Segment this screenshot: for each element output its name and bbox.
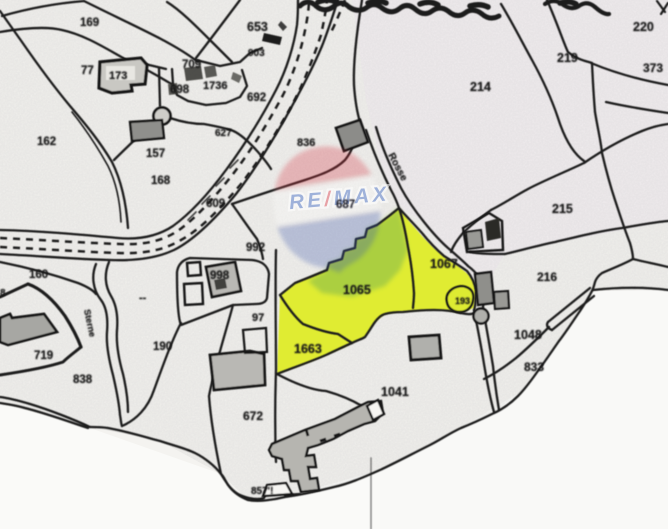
svg-text:173: 173 <box>109 70 127 82</box>
svg-text:903: 903 <box>248 48 265 59</box>
svg-text:833: 833 <box>524 360 544 374</box>
svg-text:1067: 1067 <box>430 257 458 271</box>
svg-text:672: 672 <box>243 409 263 423</box>
svg-text:214: 214 <box>470 80 491 94</box>
svg-text:627: 627 <box>215 128 232 139</box>
svg-text:168: 168 <box>151 175 171 187</box>
svg-text:992: 992 <box>246 242 265 254</box>
svg-text:1048: 1048 <box>514 328 542 342</box>
svg-text:162: 162 <box>37 136 56 148</box>
svg-text:216: 216 <box>537 270 557 284</box>
svg-text:97: 97 <box>252 312 264 324</box>
svg-text:998: 998 <box>210 270 230 282</box>
svg-text:8: 8 <box>0 288 6 299</box>
svg-text:1065: 1065 <box>343 283 371 297</box>
svg-text:709: 709 <box>182 59 201 71</box>
svg-text:719: 719 <box>34 350 53 362</box>
svg-text:190: 190 <box>153 341 172 353</box>
svg-text:77: 77 <box>81 65 94 77</box>
svg-text:169: 169 <box>80 17 99 29</box>
svg-text:836: 836 <box>297 137 315 149</box>
svg-text:219: 219 <box>557 51 578 65</box>
svg-text:653: 653 <box>247 20 268 34</box>
svg-text:838: 838 <box>73 374 93 386</box>
svg-text:609: 609 <box>206 198 225 210</box>
svg-text:692: 692 <box>247 92 266 104</box>
svg-text:1736: 1736 <box>203 80 227 92</box>
svg-text:215: 215 <box>552 202 573 216</box>
svg-text:160: 160 <box>29 269 48 281</box>
svg-text:1663: 1663 <box>294 342 322 356</box>
svg-text:157: 157 <box>146 148 165 160</box>
svg-text:1041: 1041 <box>381 385 409 399</box>
svg-text:220: 220 <box>633 20 654 34</box>
svg-text:857'!: 857'! <box>251 486 273 497</box>
svg-text:698: 698 <box>170 84 190 96</box>
svg-text:373: 373 <box>643 61 663 75</box>
svg-text:--: -- <box>139 292 147 304</box>
svg-text:687: 687 <box>336 199 355 211</box>
svg-text:193: 193 <box>455 296 470 306</box>
